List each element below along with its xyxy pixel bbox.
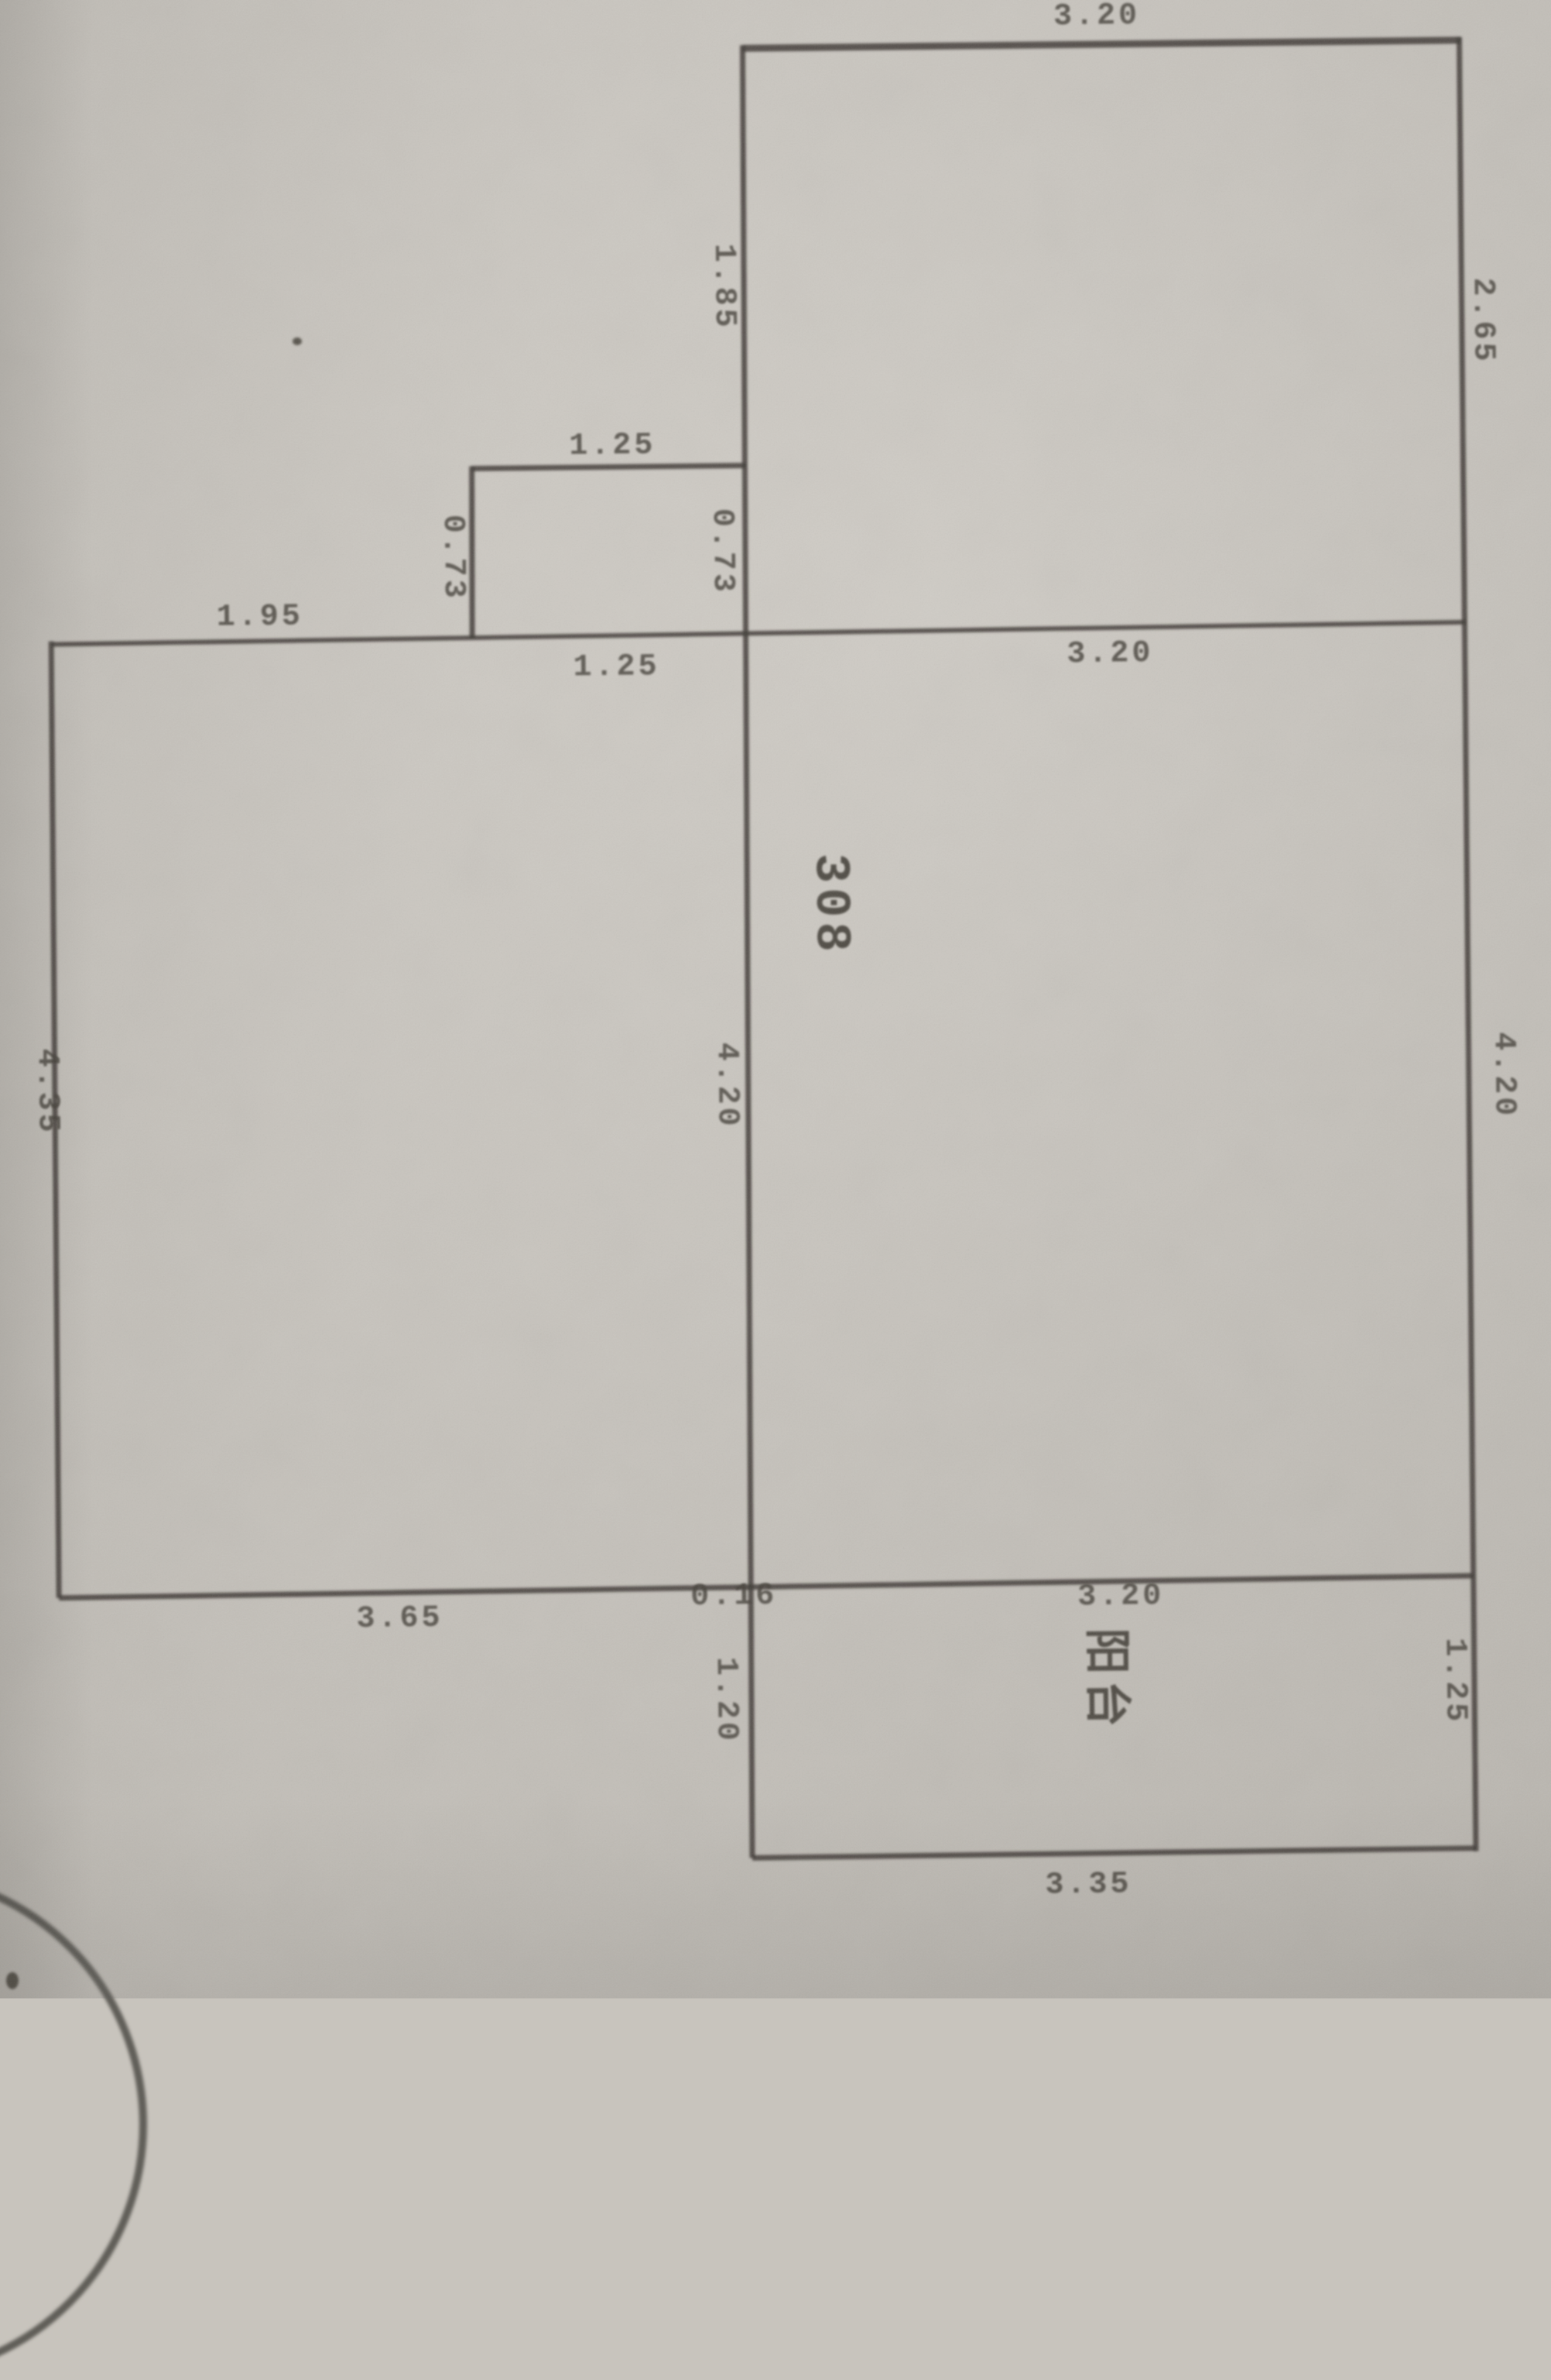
- scanned-floor-plan-page: { "colors": { "paper": "#c8c4bd", "ink":…: [0, 0, 1551, 1998]
- dim-main-mid-width: 1.25: [573, 649, 660, 685]
- ink-speck: [293, 337, 302, 345]
- dim-upper-right-height: 2.65: [1464, 277, 1500, 365]
- ink-speck: [6, 1972, 19, 1989]
- dim-top-width: 3.20: [1053, 0, 1141, 34]
- balcony-label: 阳台: [1077, 1628, 1145, 1734]
- dim-step-top-width: 1.25: [569, 428, 656, 464]
- dim-bottom-left-width: 3.65: [356, 1601, 443, 1636]
- wall-top: [743, 40, 1461, 49]
- dim-mid-height: 4.20: [709, 1042, 745, 1129]
- floor-plan: 3.20 1.85 2.65 1.25 0.73 0.73 1.95 1.25 …: [0, 0, 1551, 2007]
- dim-balcony-left-depth: 1.20: [708, 1657, 744, 1745]
- wall-step-top: [472, 465, 746, 468]
- dim-bottom-gap: 0.16: [690, 1579, 778, 1615]
- room-number-label: 308: [801, 853, 858, 957]
- dim-main-right-width: 3.20: [1067, 636, 1154, 672]
- wall-step-left: [471, 466, 474, 638]
- dim-step-left-height: 0.73: [435, 514, 471, 601]
- dim-main-left-width: 1.95: [217, 599, 304, 635]
- wall-lines: [0, 0, 1551, 2007]
- dim-balcony-right-depth: 1.25: [1436, 1638, 1472, 1725]
- dim-step-right-height: 0.73: [704, 508, 740, 595]
- dim-bottom-mid-width: 3.20: [1077, 1579, 1165, 1615]
- dim-left-room-height: 4.35: [29, 1048, 65, 1135]
- dim-balcony-bottom-width: 3.35: [1045, 1867, 1132, 1902]
- dim-upper-left-height: 1.85: [706, 243, 741, 330]
- dim-right-height: 4.20: [1486, 1032, 1522, 1119]
- wall-balcony-bottom: [752, 1848, 1476, 1858]
